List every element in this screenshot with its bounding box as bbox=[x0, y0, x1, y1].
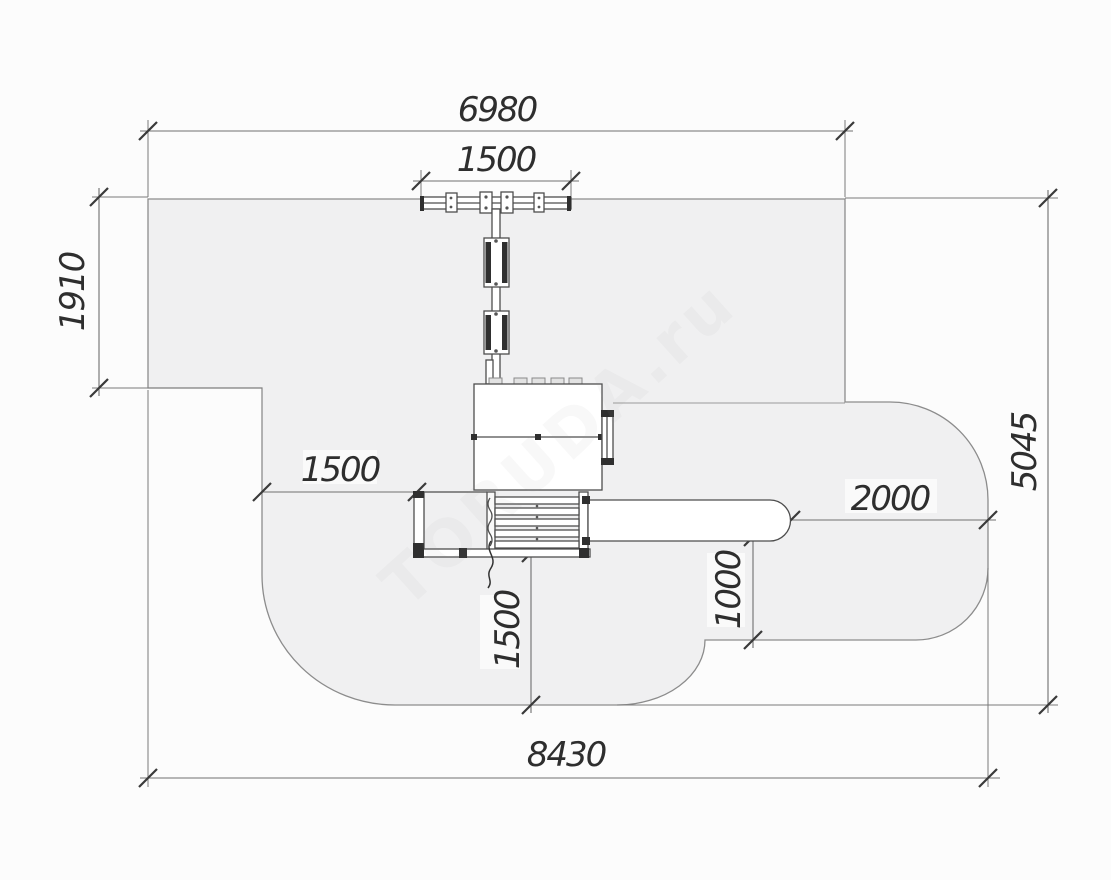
swing-hub-clamp bbox=[501, 192, 513, 213]
dim-label-left-height: 1910 bbox=[53, 252, 93, 331]
swing-hub-clamp bbox=[480, 192, 492, 213]
swing-beam-right-cap bbox=[567, 196, 571, 211]
dim-label-right-height: 5045 bbox=[1005, 412, 1045, 491]
slide bbox=[582, 496, 791, 545]
dim-label-slide-runout: 2000 bbox=[851, 479, 930, 519]
dimension-swing-beam: 1500 bbox=[412, 140, 580, 196]
dim-label-slide-side-clearance: 1000 bbox=[709, 550, 749, 629]
drawing-canvas: 6980 1500 1910 5045 1500 bbox=[0, 0, 1111, 880]
swing-beam-clamp bbox=[534, 193, 544, 212]
dim-label-top-width: 6980 bbox=[458, 90, 537, 130]
dim-label-total-width: 8430 bbox=[527, 735, 606, 775]
dim-label-bottom-clearance: 1500 bbox=[488, 590, 528, 669]
swing-seat bbox=[484, 238, 509, 287]
dim-label-platform-clearance: 1500 bbox=[301, 450, 380, 490]
swing-beam-clamp bbox=[446, 193, 457, 212]
swing-frame-pole bbox=[492, 209, 500, 384]
swing-seat bbox=[484, 311, 509, 354]
slide-body bbox=[588, 500, 791, 541]
dim-label-swing-beam: 1500 bbox=[457, 140, 536, 180]
swing-beam-left-cap bbox=[420, 196, 424, 211]
